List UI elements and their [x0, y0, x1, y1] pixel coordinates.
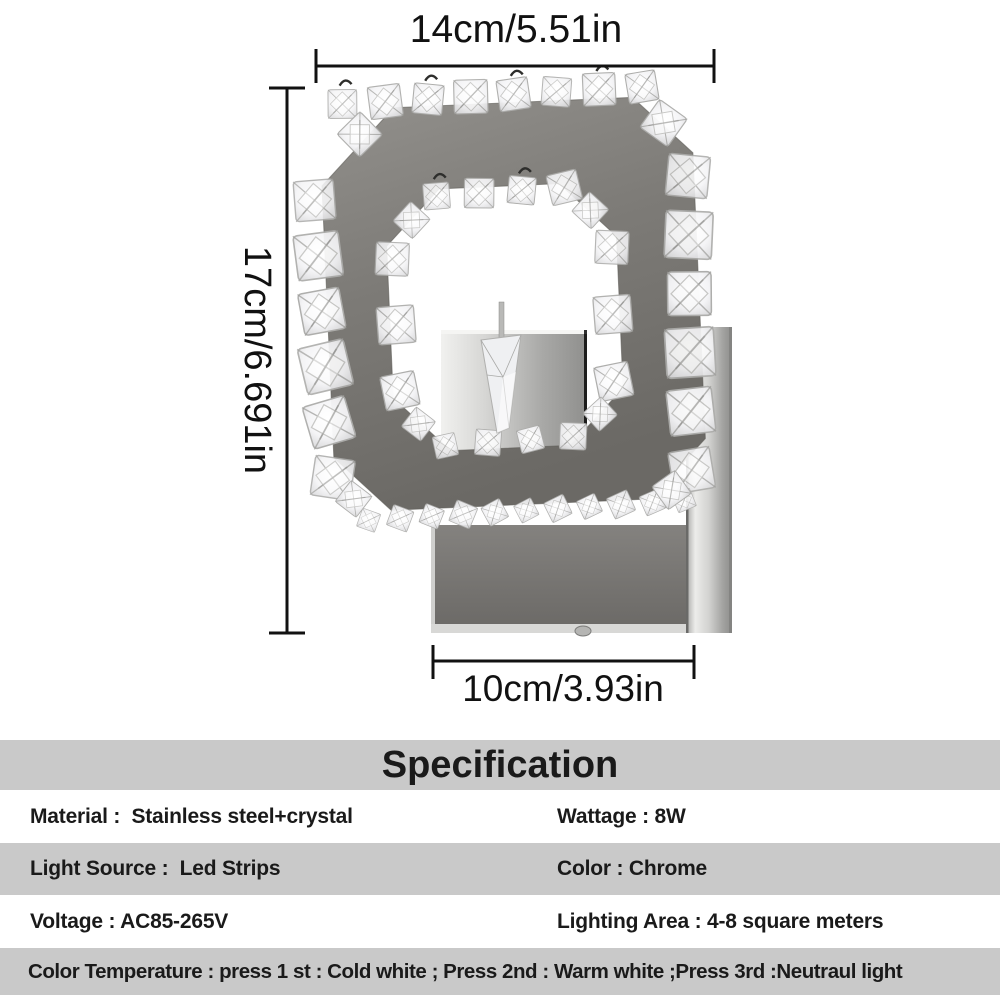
- spec-row-voltage-area: Voltage : AC85-265V Lighting Area : 4-8 …: [0, 895, 1000, 948]
- spec-color-temperature-value: Color Temperature : press 1 st : Cold wh…: [0, 960, 902, 984]
- specification-header: Specification: [0, 740, 1000, 790]
- spec-material-value: Material : Stainless steel+crystal: [0, 805, 527, 829]
- spec-color-value: Color : Chrome: [527, 857, 1000, 881]
- base-plate: [431, 525, 693, 636]
- spec-light-source-value: Light Source : Led Strips: [0, 857, 527, 881]
- spec-wattage-value: Wattage : 8W: [527, 805, 1000, 829]
- spec-row-color-temperature: Color Temperature : press 1 st : Cold wh…: [0, 948, 1000, 995]
- lamp-figure: 14cm/5.51in 17cm/6.691in 10cm/3.93in: [0, 0, 1000, 740]
- spec-row-material-wattage: Material : Stainless steel+crystal Watta…: [0, 790, 1000, 843]
- height-dimension-label: 17cm/6.691in: [233, 210, 281, 510]
- crystal-ring: [285, 61, 726, 536]
- base-width-dimension-label: 10cm/3.93in: [413, 668, 713, 710]
- spec-lighting-area-value: Lighting Area : 4-8 square meters: [527, 910, 1000, 934]
- lamp-illustration: [0, 0, 1000, 740]
- product-spec-image: 14cm/5.51in 17cm/6.691in 10cm/3.93in Spe…: [0, 0, 1000, 1000]
- specification-title: Specification: [382, 744, 619, 787]
- switch-nub: [575, 626, 591, 636]
- specification-section: Specification Material : Stainless steel…: [0, 740, 1000, 995]
- spec-row-lightsource-color: Light Source : Led Strips Color : Chrome: [0, 843, 1000, 895]
- width-dimension-label: 14cm/5.51in: [316, 8, 716, 52]
- spec-voltage-value: Voltage : AC85-265V: [0, 910, 527, 934]
